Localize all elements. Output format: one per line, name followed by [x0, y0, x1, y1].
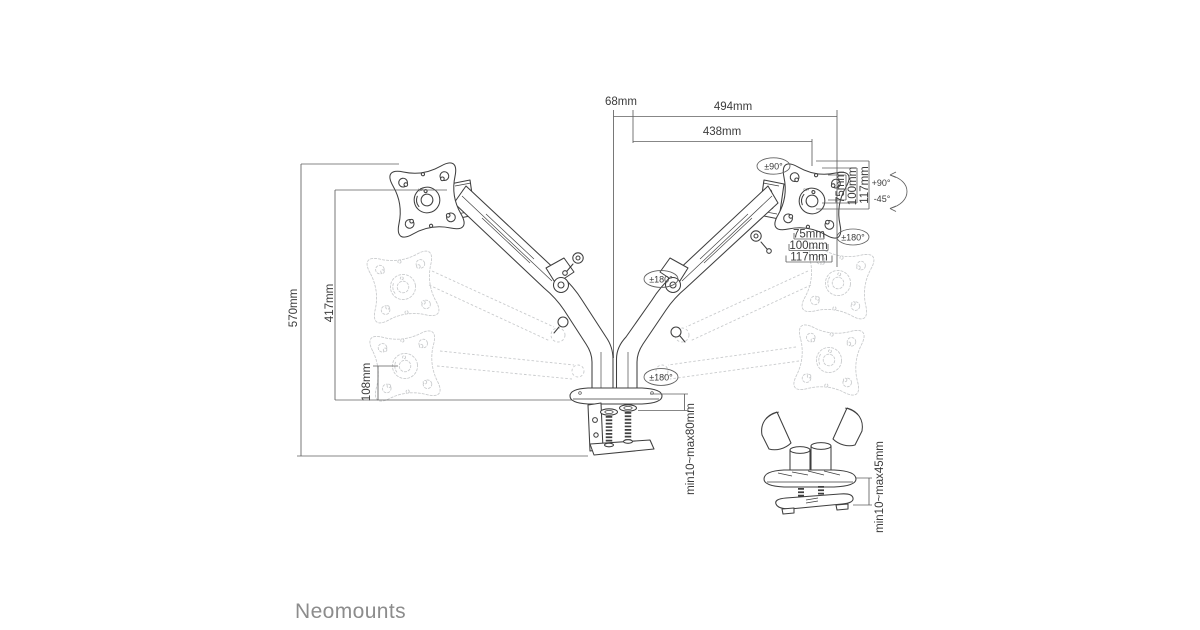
right-tension-dial	[751, 231, 772, 254]
dim-label-min-height: 108mm	[361, 363, 373, 401]
plate-up-marking-right: UP	[803, 187, 810, 193]
dim-label-arm-reach: 438mm	[703, 126, 741, 138]
technical-drawing-page: 68mm 494mm 438mm 570mm 417mm 108mm min10…	[0, 0, 1200, 630]
dim-label-vesa-h-75: 75mm	[793, 229, 825, 241]
right-arm	[617, 186, 779, 391]
angle-label-swivel: ±90°	[764, 162, 783, 172]
brand-logo: Neomounts	[295, 600, 406, 623]
angle-label-rotation-vesa: ±180°	[841, 233, 865, 243]
grommet-mount-drawing	[762, 408, 863, 514]
ghost-vesa-plate	[366, 250, 439, 323]
angle-label-tilt-down: -45°	[874, 194, 891, 204]
main-arm-drawing	[389, 162, 850, 455]
plate-up-marking-left: UP	[418, 187, 425, 193]
dim-label-pole-offset: 68mm	[605, 96, 637, 108]
angle-label-tilt-up: +90°	[872, 178, 891, 188]
ghost-vesa-plate	[793, 324, 864, 395]
dim-label-max-reach: 494mm	[714, 101, 752, 113]
left-arm	[454, 186, 613, 391]
angle-label-rotation-arm: ±180°	[649, 275, 673, 285]
dim-label-vesa-h-100: 100mm	[789, 240, 827, 252]
desk-base-plate	[570, 388, 662, 404]
dim-label-mid-height: 417mm	[324, 284, 336, 322]
dim-label-vesa-v-100: 100mm	[847, 167, 859, 205]
angle-label-rotation-base: ±180°	[649, 373, 673, 383]
dim-label-vesa-v-117: 117mm	[859, 166, 871, 204]
dim-label-max-height: 570mm	[288, 289, 300, 327]
dim-label-vesa-h-117: 117mm	[790, 252, 828, 264]
dim-label-grommet-range: min10~max45mm	[874, 441, 886, 533]
left-vesa-plate	[389, 162, 465, 238]
dim-label-clamp-range: min10~max80mm	[685, 403, 697, 495]
dimension-diagram: 68mm 494mm 438mm 570mm 417mm 108mm min10…	[0, 0, 1200, 630]
dim-label-vesa-v-75: 75mm	[835, 171, 847, 203]
